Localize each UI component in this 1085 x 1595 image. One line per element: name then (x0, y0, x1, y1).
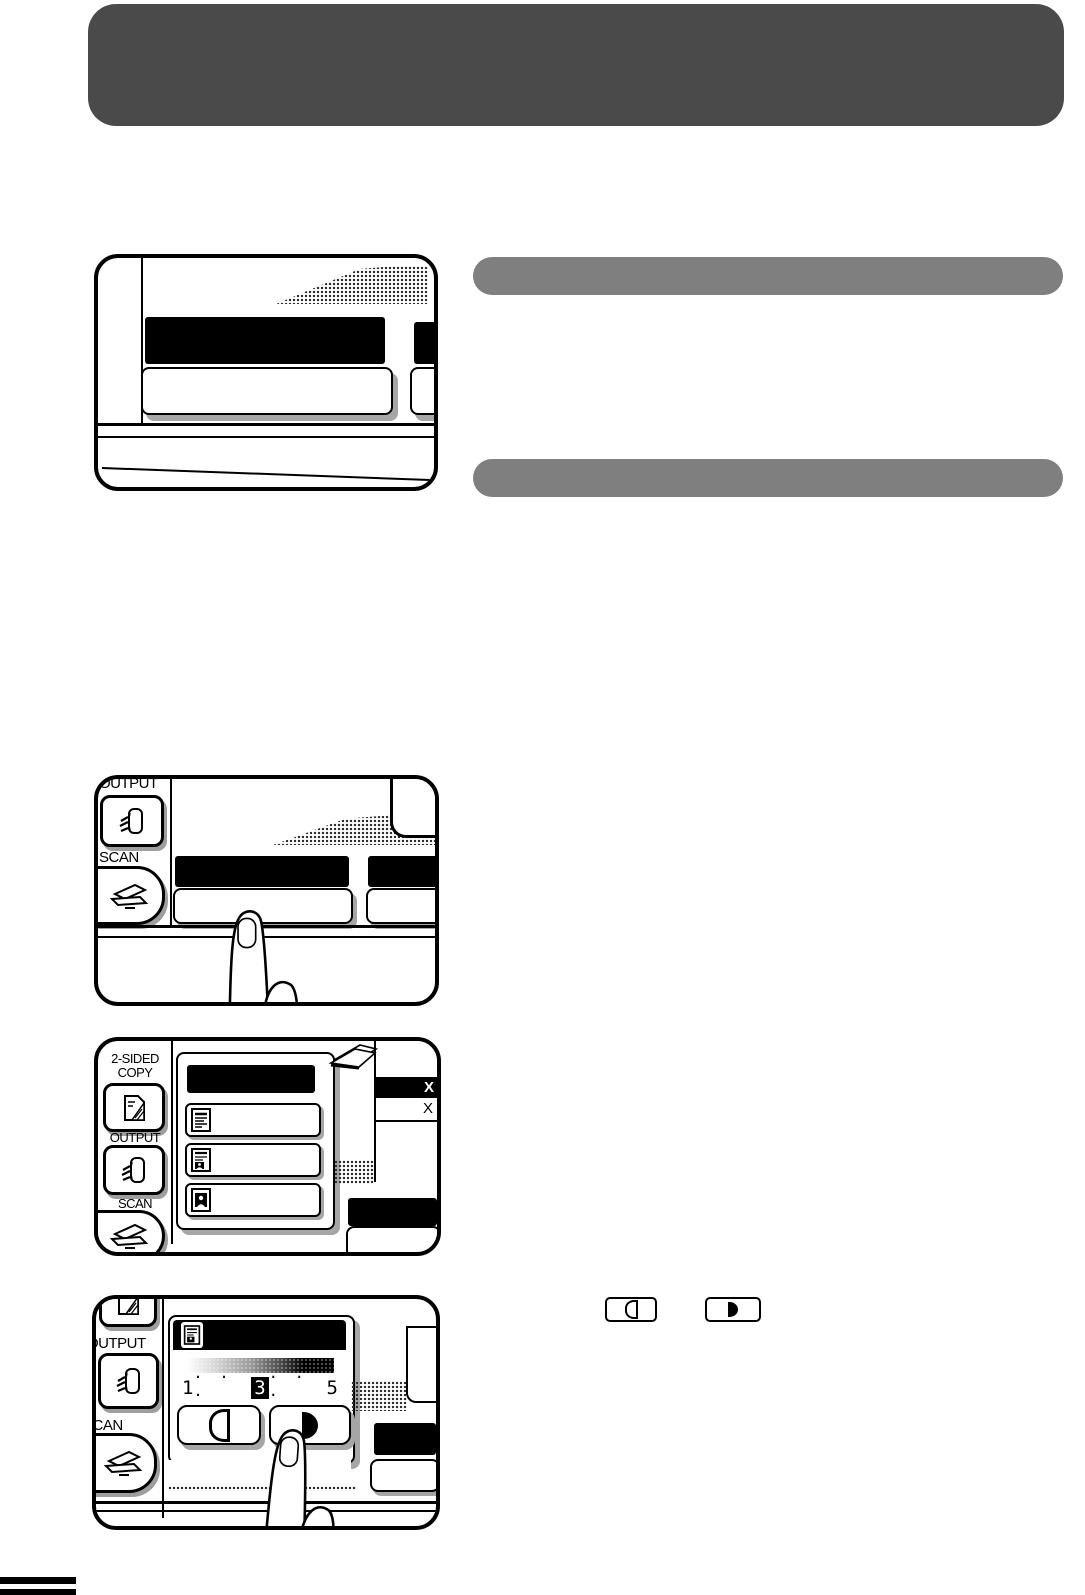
size-list-column: X X (374, 1041, 439, 1182)
scale-dots-left: · · · (193, 1368, 251, 1408)
touch-key-blank-right (410, 367, 438, 415)
scan-key (94, 866, 165, 925)
flatbed-scanner-icon (103, 1449, 143, 1477)
touch-key-bottom-right (346, 1226, 441, 1256)
step-illustration-message-display (94, 254, 438, 491)
touch-key-right (366, 888, 439, 924)
flatbed-scanner-icon (109, 1222, 149, 1250)
dialog-title-bar (173, 1320, 346, 1350)
bezel-edge-line-2 (98, 436, 434, 438)
message-display-bar-right (348, 1198, 437, 1226)
page-edge-index-mark-1 (0, 1577, 76, 1584)
page-edge-index-mark-2 (0, 1589, 76, 1595)
text-photo-original-icon (190, 1147, 212, 1173)
panel-front-edge-line (98, 456, 434, 486)
screen-corner-cutout (406, 1326, 436, 1403)
size-row-selected: X (376, 1077, 439, 1098)
output-key (100, 795, 164, 847)
message-display-bar-right (374, 1423, 436, 1455)
two-sided-copy-label-line1: 2-SIDED (98, 1051, 172, 1066)
light-half-circle-outline-icon (625, 1300, 638, 1319)
inline-dark-key (705, 1297, 761, 1322)
text-photo-original-icon (183, 1324, 201, 1346)
two-sided-copy-key-partial (99, 1295, 157, 1327)
chapter-header-banner (88, 4, 1064, 126)
section-heading-bar-1 (473, 257, 1063, 295)
message-display-bar-right (368, 856, 438, 887)
pointing-finger-illustration (239, 1395, 344, 1530)
message-display-bar (145, 317, 385, 364)
flatbed-scanner-icon (109, 882, 149, 910)
original-type-dialog (176, 1052, 335, 1230)
screen-corner-cutout (390, 779, 435, 838)
bezel-divider (162, 1299, 164, 1518)
text-photo-original-button (185, 1143, 321, 1177)
light-half-circle-outline-icon (209, 1409, 230, 1442)
scale-max: 5 (327, 1377, 338, 1399)
halftone-screen-glare (276, 266, 428, 304)
two-sided-copy-icon (115, 1295, 141, 1317)
original-in-feeder-sketch (328, 1040, 378, 1070)
scan-key-label: SCAN (98, 1196, 172, 1211)
output-key-label: OUTPUT (92, 1335, 146, 1352)
bezel-edge-line (98, 423, 434, 426)
touch-key-bottom-right (370, 1459, 440, 1492)
pointing-finger-illustration (203, 879, 298, 1006)
step-illustration-exposure-adjust: OUTPUT SCAN (92, 1295, 440, 1530)
output-key-label: OUTPUT (98, 1130, 172, 1145)
inline-light-key (605, 1297, 657, 1322)
manual-page: OUTPUT SCAN (0, 0, 1085, 1595)
halftone-shade-strip (351, 1381, 407, 1411)
two-sided-copy-icon (121, 1093, 147, 1123)
scan-key-label: SCAN (92, 1417, 123, 1434)
scale-min: 1 (182, 1377, 193, 1399)
section-heading-bar-2 (473, 459, 1063, 497)
output-key (98, 1353, 159, 1409)
bezel-divider (170, 779, 172, 926)
message-display-bar-right (414, 322, 438, 364)
scan-key (92, 1433, 157, 1493)
two-sided-copy-key (103, 1083, 165, 1132)
bezel-divider (171, 1041, 173, 1244)
touch-key-blank (141, 367, 393, 415)
step-illustration-original-type: 2-SIDED COPY OUTPUT SCAN (94, 1037, 441, 1256)
scan-key (94, 1210, 165, 1256)
step-illustration-press-key: OUTPUT SCAN (94, 775, 439, 1006)
output-finisher-icon (117, 806, 147, 836)
text-original-icon (190, 1107, 212, 1133)
size-row-unselected: X (376, 1098, 439, 1120)
output-key-label: OUTPUT (99, 775, 158, 792)
halftone-shade-strip (334, 1160, 375, 1184)
two-sided-copy-label-line2: COPY (98, 1065, 172, 1080)
scan-key-label: SCAN (99, 849, 139, 866)
output-key (103, 1145, 165, 1195)
output-finisher-icon (119, 1155, 149, 1185)
text-original-button (185, 1103, 321, 1137)
original-type-indicator (181, 1322, 203, 1348)
photo-original-button (185, 1183, 321, 1217)
dark-half-circle-filled-icon (728, 1302, 738, 1317)
dialog-title-bar (187, 1065, 315, 1093)
list-separator-line (376, 1120, 439, 1122)
output-finisher-icon (114, 1366, 144, 1396)
photo-original-icon (190, 1187, 212, 1213)
